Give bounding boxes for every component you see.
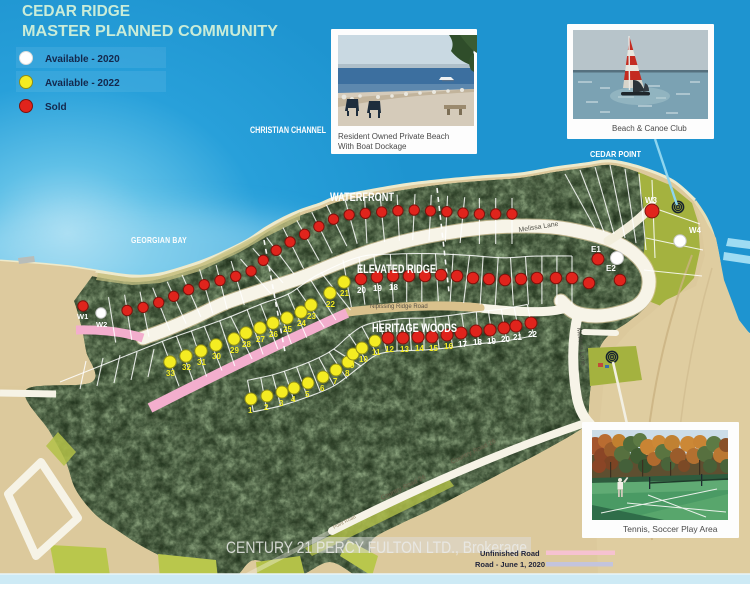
svg-text:W4: W4 bbox=[689, 226, 702, 235]
svg-text:MASTER PLANNED COMMUNITY: MASTER PLANNED COMMUNITY bbox=[22, 23, 278, 40]
svg-text:7: 7 bbox=[333, 377, 338, 386]
svg-text:Available - 2022: Available - 2022 bbox=[45, 78, 120, 89]
svg-text:23: 23 bbox=[307, 312, 316, 321]
svg-text:15: 15 bbox=[429, 344, 438, 353]
svg-text:24: 24 bbox=[297, 319, 306, 328]
svg-text:HERITAGE WOODS: HERITAGE WOODS bbox=[372, 323, 457, 335]
svg-text:21: 21 bbox=[513, 333, 522, 342]
svg-text:17: 17 bbox=[458, 340, 467, 349]
svg-text:31: 31 bbox=[197, 358, 206, 367]
svg-text:16: 16 bbox=[444, 342, 453, 351]
svg-text:GEORGIAN BAY: GEORGIAN BAY bbox=[131, 235, 187, 245]
svg-text:12: 12 bbox=[385, 345, 394, 354]
svg-text:CHRISTIAN CHANNEL: CHRISTIAN CHANNEL bbox=[250, 125, 326, 135]
svg-text:8: 8 bbox=[345, 369, 350, 378]
svg-text:19: 19 bbox=[373, 284, 382, 293]
svg-text:18: 18 bbox=[389, 283, 398, 292]
svg-text:With Boat Dockage: With Boat Dockage bbox=[338, 142, 407, 151]
svg-text:10: 10 bbox=[359, 355, 368, 364]
svg-text:21: 21 bbox=[340, 289, 349, 298]
svg-text:6: 6 bbox=[320, 384, 325, 393]
svg-text:27: 27 bbox=[256, 335, 265, 344]
svg-text:W2: W2 bbox=[96, 320, 107, 329]
svg-text:28: 28 bbox=[242, 340, 251, 349]
svg-text:32: 32 bbox=[182, 363, 191, 372]
svg-text:CEDAR POINT: CEDAR POINT bbox=[590, 149, 642, 159]
svg-text:Available - 2020: Available - 2020 bbox=[45, 54, 120, 65]
svg-text:14: 14 bbox=[415, 344, 424, 353]
svg-text:26: 26 bbox=[269, 330, 278, 339]
svg-text:CEDAR RIDGE: CEDAR RIDGE bbox=[22, 3, 130, 20]
svg-text:30: 30 bbox=[212, 352, 221, 361]
svg-text:E1: E1 bbox=[591, 245, 601, 254]
svg-text:WATERFRONT: WATERFRONT bbox=[330, 192, 394, 204]
svg-text:Road - June 1, 2020: Road - June 1, 2020 bbox=[475, 560, 545, 569]
svg-text:33: 33 bbox=[166, 369, 175, 378]
svg-text:20: 20 bbox=[357, 286, 366, 295]
svg-text:4: 4 bbox=[291, 395, 296, 404]
svg-text:18: 18 bbox=[473, 338, 482, 347]
svg-text:Resident Owned Private Beach: Resident Owned Private Beach bbox=[338, 132, 449, 141]
svg-text:E2: E2 bbox=[606, 264, 616, 273]
svg-text:Sold: Sold bbox=[45, 102, 67, 113]
svg-text:2: 2 bbox=[264, 403, 269, 412]
svg-text:13: 13 bbox=[400, 345, 409, 354]
svg-text:Beach & Canoe Club: Beach & Canoe Club bbox=[612, 124, 687, 133]
svg-text:22: 22 bbox=[326, 300, 335, 309]
svg-text:9: 9 bbox=[350, 361, 355, 370]
svg-text:ELEVATED RIDGE: ELEVATED RIDGE bbox=[357, 264, 436, 276]
svg-text:3: 3 bbox=[279, 399, 284, 408]
svg-text:20: 20 bbox=[501, 335, 510, 344]
svg-text:25: 25 bbox=[283, 325, 292, 334]
svg-text:5: 5 bbox=[305, 390, 310, 399]
svg-text:W1: W1 bbox=[77, 312, 88, 321]
svg-text:Unfinished Road: Unfinished Road bbox=[480, 549, 540, 558]
svg-text:W3: W3 bbox=[645, 196, 658, 205]
svg-text:29: 29 bbox=[230, 346, 239, 355]
svg-text:Tennis, Soccer Play Area: Tennis, Soccer Play Area bbox=[623, 524, 718, 534]
svg-text:19: 19 bbox=[487, 337, 496, 346]
svg-text:22: 22 bbox=[528, 330, 537, 339]
svg-text:1: 1 bbox=[248, 406, 253, 415]
svg-text:Nipissing Ridge Road: Nipissing Ridge Road bbox=[370, 304, 428, 310]
svg-text:11: 11 bbox=[372, 348, 381, 357]
